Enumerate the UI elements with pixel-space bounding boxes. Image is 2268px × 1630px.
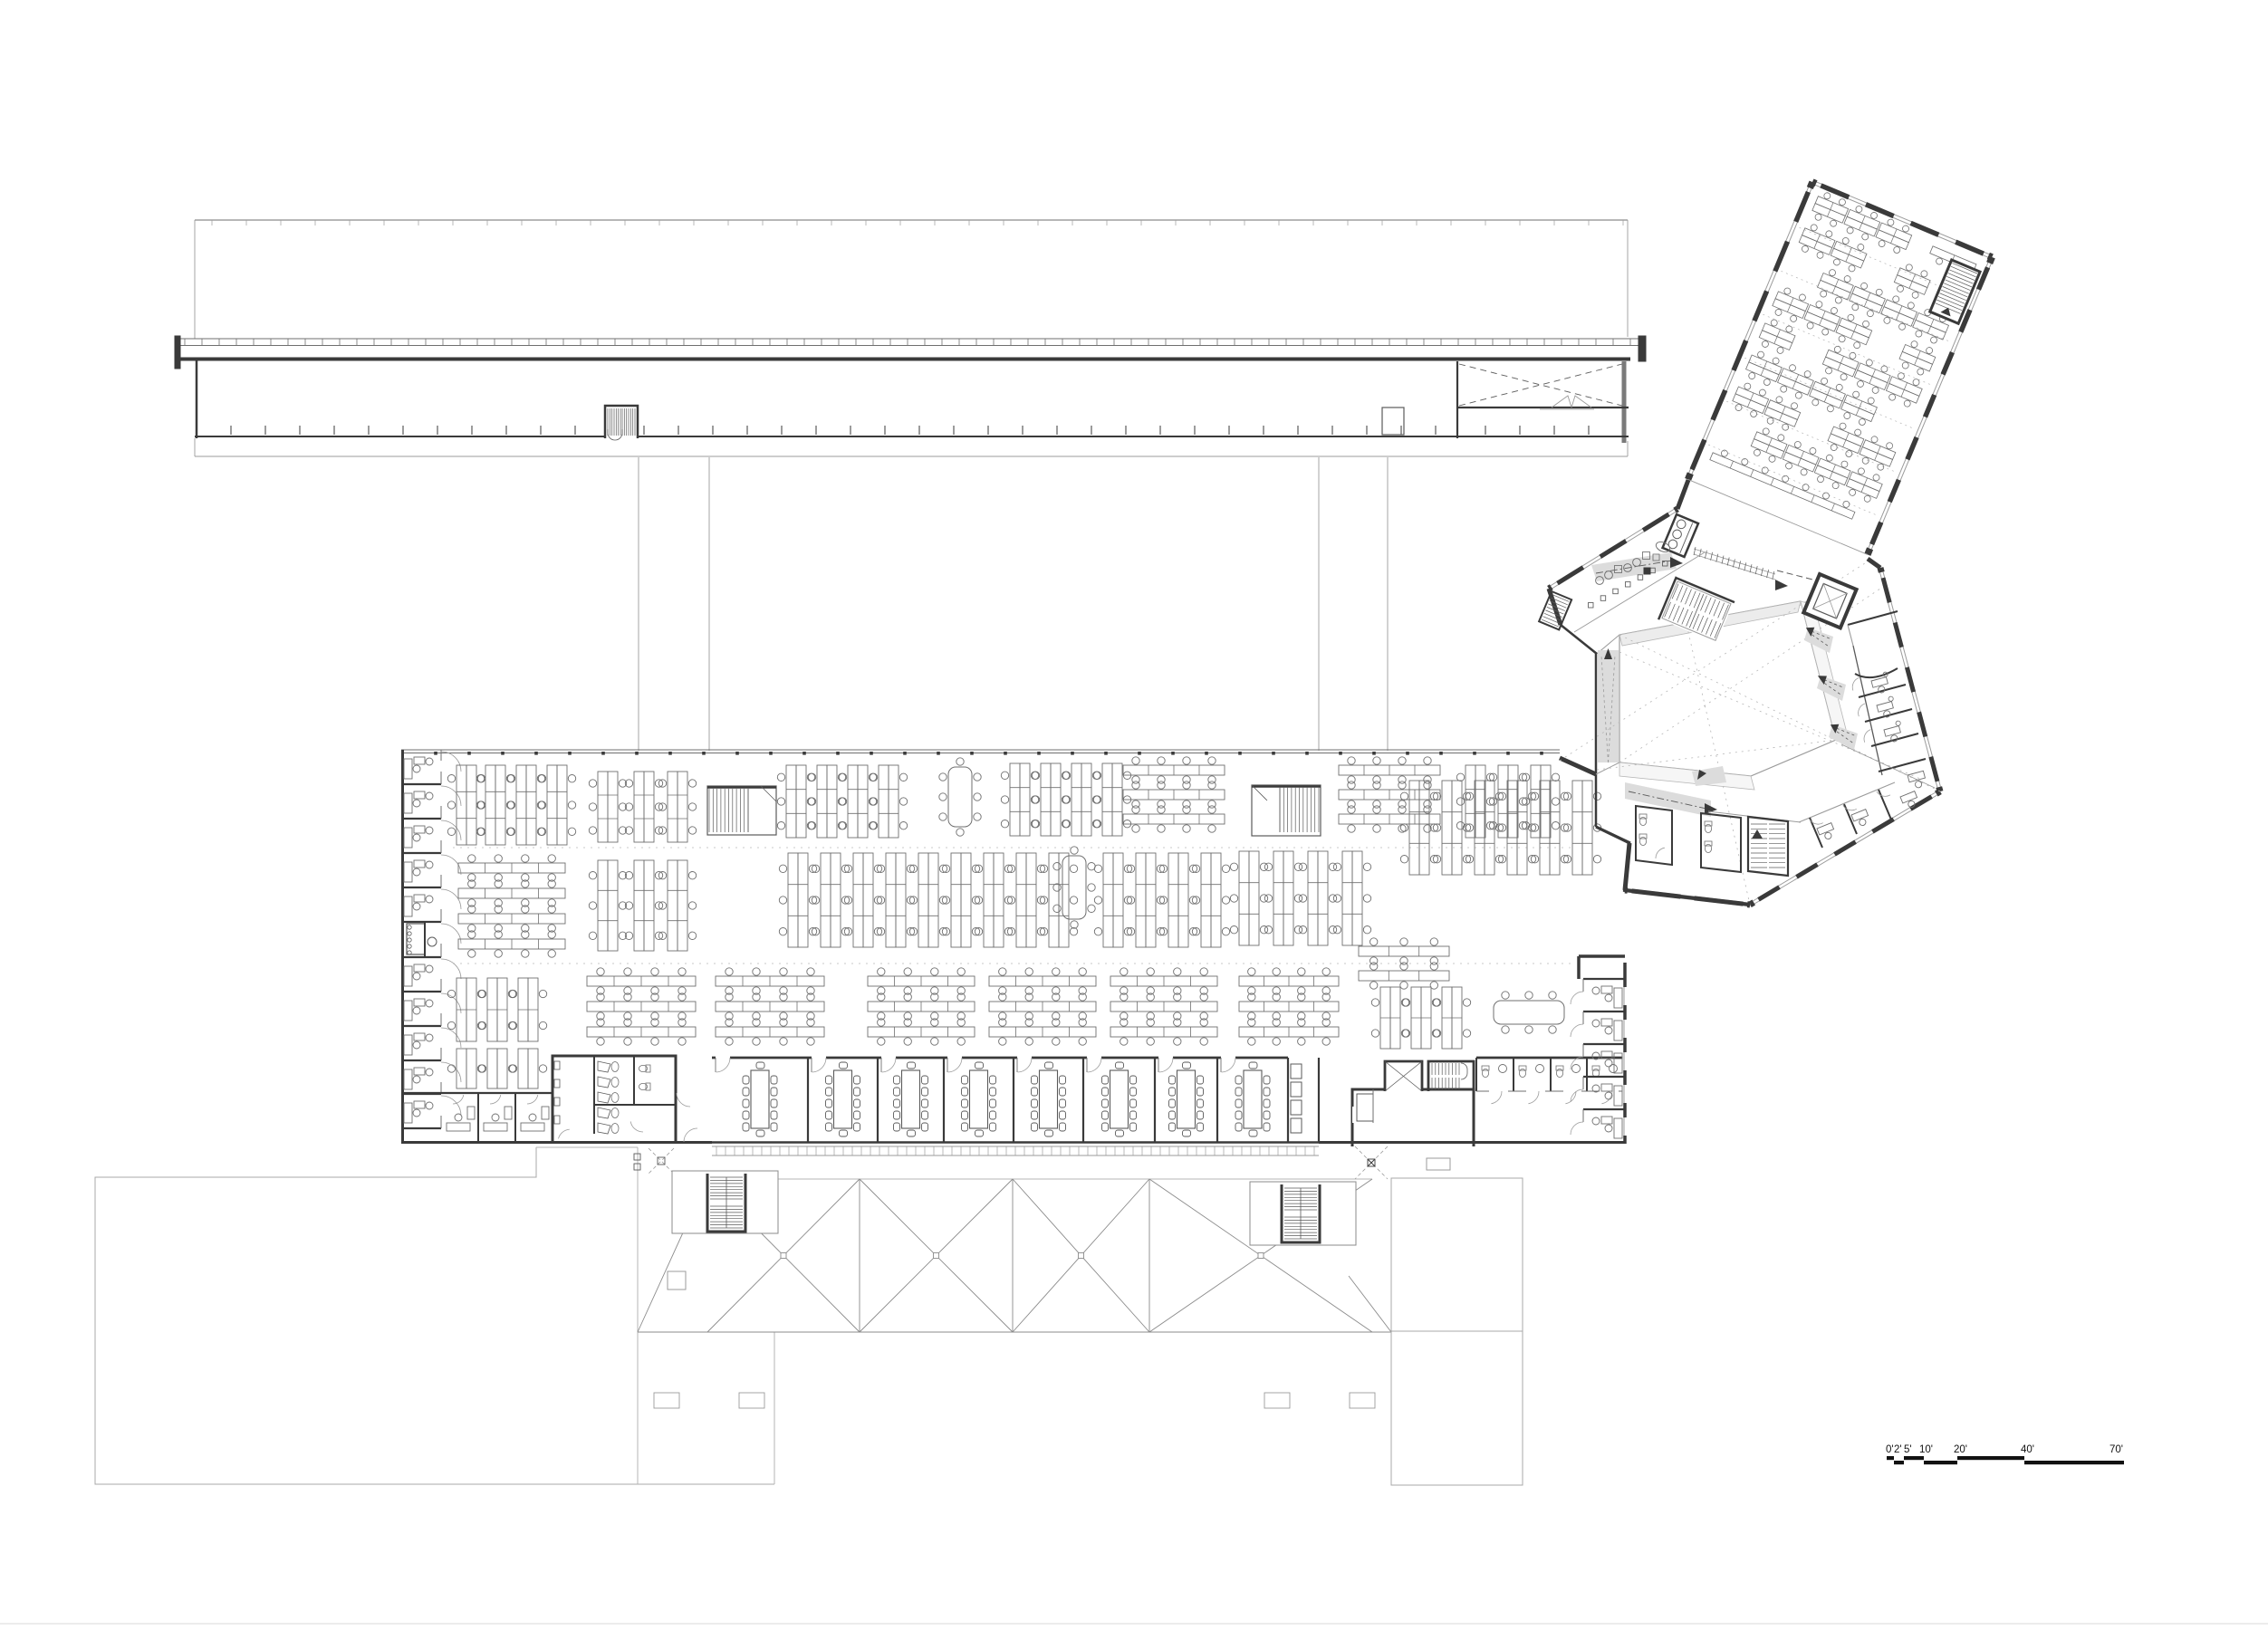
svg-text:2': 2'	[1894, 1444, 1902, 1455]
svg-text:5': 5'	[1904, 1444, 1912, 1455]
svg-text:10': 10'	[1919, 1444, 1933, 1455]
svg-text:0': 0'	[1886, 1444, 1894, 1455]
svg-text:40': 40'	[2021, 1444, 2034, 1455]
svg-text:20': 20'	[1954, 1444, 1967, 1455]
svg-text:70': 70'	[2109, 1444, 2123, 1455]
